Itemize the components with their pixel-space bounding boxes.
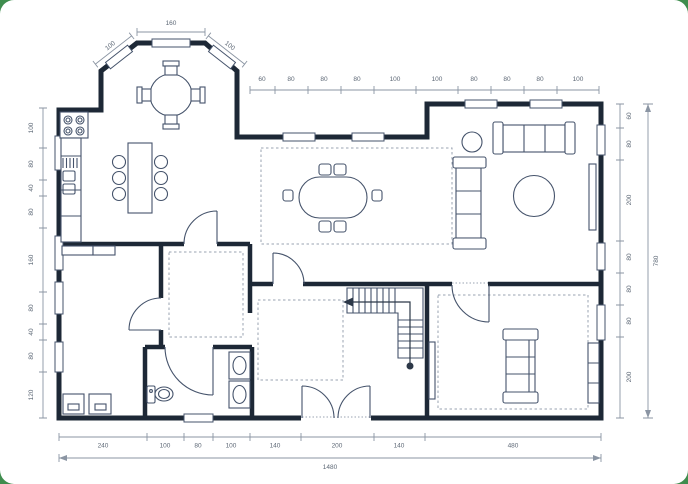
dimension-label: 160 (166, 20, 177, 27)
dimension-label: 200 (626, 371, 633, 382)
washing-machines (63, 394, 111, 414)
stairs-arrow-icon (343, 298, 353, 307)
kitchen-counter (61, 138, 81, 242)
bathroom-door (165, 347, 213, 395)
hall-closet-zone (169, 252, 243, 337)
dimension-right-side: 60 80 200 80 80 80 200 (616, 104, 633, 418)
dimension-label: 80 (626, 317, 633, 325)
dimension-label: 80 (626, 253, 633, 261)
dimension-label: 100 (226, 443, 237, 450)
dimension-label: 200 (332, 443, 343, 450)
dimension-label: 140 (394, 443, 405, 450)
entry-opening (301, 413, 371, 423)
kitchen-table (113, 143, 168, 213)
bay-round-table (137, 61, 205, 129)
dimension-label: 80 (28, 352, 35, 360)
dimension-left-side: 100 80 40 80 160 80 40 80 120 (28, 108, 47, 418)
dining-window-1 (283, 133, 315, 141)
dimension-label: 80 (626, 285, 633, 293)
stove (60, 112, 88, 138)
dimension-label: 120 (28, 389, 35, 400)
sofa-vertical (453, 157, 486, 249)
dimension-label: 100 (432, 76, 443, 83)
floor-plan-canvas: 160 100 100 60 80 80 80 100 100 80 80 80… (0, 0, 688, 484)
bedroom-door (452, 285, 489, 322)
bathroom-window (184, 414, 213, 422)
dimension-label: 60 (258, 76, 266, 83)
entry-mat-zone (258, 300, 343, 380)
dimension-label: 40 (28, 184, 35, 192)
right-window-3 (597, 305, 605, 340)
dimension-top-run: 60 80 80 80 100 100 80 80 80 100 (250, 76, 599, 94)
dimension-label: 80 (28, 304, 35, 312)
dimension-label: 100 (28, 122, 35, 133)
dimension-label: 1480 (323, 464, 338, 471)
dimension-label: 80 (287, 76, 295, 83)
dimension-label: 100 (573, 76, 584, 83)
stairs (343, 288, 423, 370)
bathroom-sinks (229, 352, 250, 408)
stairs-start-dot (407, 363, 414, 370)
side-table-round (462, 132, 482, 152)
left-window-3 (55, 282, 63, 314)
dimension-label: 80 (470, 76, 478, 83)
dimension-label: 80 (353, 76, 361, 83)
dimension-bottom-run: 240 100 80 100 140 200 140 480 (59, 433, 601, 450)
dimension-label: 100 (160, 443, 171, 450)
bedroom-sofa (503, 329, 538, 403)
dimension-label: 780 (653, 255, 660, 266)
kitchen-door (184, 211, 217, 244)
dimension-label: 80 (194, 443, 202, 450)
dimension-label: 60 (626, 112, 633, 120)
dimension-bay-top: 160 (137, 20, 205, 36)
dimension-label: 140 (270, 443, 281, 450)
toilet (147, 386, 173, 403)
laundry-door (129, 298, 161, 330)
dimension-label: 80 (28, 208, 35, 216)
dimension-label: 100 (390, 76, 401, 83)
bedroom-console (429, 342, 435, 399)
dimension-label: 240 (98, 443, 109, 450)
dimension-label: 40 (28, 328, 35, 336)
living-room-radiator (589, 164, 596, 230)
laundry-shelf (62, 246, 115, 255)
dimension-label: 160 (28, 254, 35, 265)
right-window-2 (597, 243, 605, 270)
dimension-right-total: 780 (643, 104, 660, 418)
dimension-label: 80 (626, 140, 633, 148)
right-window-1 (597, 125, 605, 155)
floor-plan-card: 160 100 100 60 80 80 80 100 100 80 80 80… (0, 0, 688, 484)
dimension-label: 100 (223, 40, 236, 52)
oval-dining-table (283, 164, 382, 232)
living-top-window-1 (465, 100, 497, 108)
dimension-label: 100 (104, 40, 117, 52)
dimension-label: 200 (626, 194, 633, 205)
dining-window-2 (352, 133, 384, 141)
left-window-4 (55, 342, 63, 372)
sofa-horizontal (493, 122, 575, 154)
round-coffee-table (514, 176, 555, 217)
living-top-window-2 (530, 100, 562, 108)
dimension-label: 480 (508, 443, 519, 450)
dimension-bottom-total: 1480 (59, 454, 601, 471)
dining-room-door (273, 253, 304, 284)
bay-top-window (152, 39, 190, 47)
dimension-label: 80 (320, 76, 328, 83)
bedroom-bookshelf (588, 343, 599, 403)
dimension-label: 80 (503, 76, 511, 83)
dimension-label: 80 (28, 160, 35, 168)
dimension-label: 80 (536, 76, 544, 83)
